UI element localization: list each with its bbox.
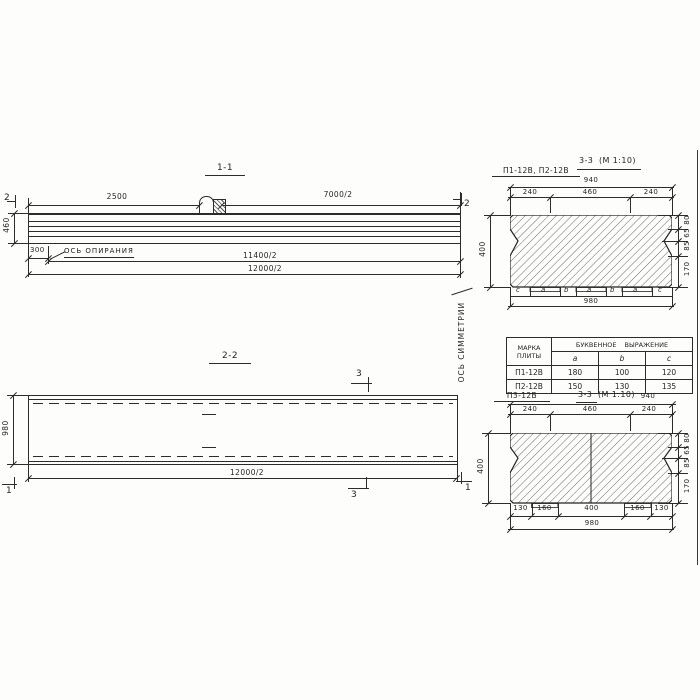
cut-mark-1-left: 1 [6,487,12,497]
beam-strand-line [28,221,460,222]
table-header-marka: МАРКА ПЛИТЫ [507,338,552,366]
center-mark [202,414,216,415]
ext-line [7,464,28,465]
dim-980: 980 [576,520,608,528]
beam-strand-line [28,231,460,232]
table-cell-c: 120 [646,366,693,380]
letter-values-table: МАРКА ПЛИТЫ БУКВЕННОЕ ВЫРАЖЕНИЕ a b c П1… [506,337,693,394]
section-33b-plate-label: П3-12В [494,392,550,402]
dim-line [28,205,199,206]
seg-line [576,287,577,296]
dim-2500: 2500 [95,193,139,201]
title-underline [577,169,641,170]
lifting-loop [199,196,214,214]
cross-section-p3 [510,433,672,509]
dim-460: 460 [3,209,11,241]
slab-edge [28,395,457,396]
ext-line [658,287,688,288]
dim-85: 85 [684,451,692,475]
dim-160: 160 [625,505,650,513]
dim-line [678,215,679,287]
cut-mark-line [7,201,16,202]
axis-support-label: ОСЬ ОПИРАНИЯ [64,248,134,258]
dim-line [28,274,460,275]
dim-line [48,261,460,262]
beam-left-edge [28,213,29,244]
dim-85: 85 [684,234,692,258]
letter-b: b [564,287,569,295]
ext-line [510,404,511,433]
dim-400: 400 [477,450,485,482]
ext-line [672,404,673,433]
loop-anchor-detail [213,199,226,214]
dim-460: 460 [574,189,606,197]
section-2-2-title: 2-2 [209,352,251,364]
letter-b: b [610,287,615,295]
dim-170: 170 [684,257,692,281]
ext-line [630,197,631,213]
dim-line [508,414,674,415]
cut-mark-line [453,199,462,200]
dim-12000-2-plan: 12000/2 [217,469,277,477]
dim-240-left: 240 [514,406,546,414]
dim-7000-2: 7000/2 [308,191,368,199]
dim-line [508,306,674,307]
cut-mark-1-right: 1 [465,484,471,494]
table-col-b: b [599,352,646,366]
ext-line [8,243,28,244]
ext-line [457,465,458,482]
cut-mark-line [14,477,15,489]
slab-edge [28,399,457,400]
seg-line [672,287,673,296]
cut-mark-line [456,481,472,482]
table-cell-marka: П1-12В [507,366,552,380]
dim-line [13,395,14,465]
section-33b-scale: (М 1:10) [598,391,635,400]
dim-940: 940 [636,393,660,401]
letter-a: a [541,287,546,295]
hidden-rib-line [33,456,453,457]
cut-mark-line [461,472,462,484]
section-33b-title: 3-3 [578,391,592,400]
seg-line [510,287,511,296]
cut-mark-2-right: 2 [464,200,470,210]
section-33a-title: 3-3 [579,157,593,166]
letter-a: a [587,287,592,295]
table-header-group: БУКВЕННОЕ ВЫРАЖЕНИЕ [552,338,693,352]
letter-c: c [516,287,520,295]
section-33a-scale: (М 1:10) [599,157,636,166]
seg-line [606,287,607,296]
dim-980: 980 [2,412,10,444]
ext-line [28,198,29,213]
dim-980: 980 [575,298,607,306]
dim-300: 300 [30,247,45,255]
slab-edge [28,395,29,465]
cut-mark-3-bottom: 3 [351,491,357,501]
cross-section-p1-p2 [510,215,672,293]
dim-11400-2: 11400/2 [230,252,290,260]
dim-130: 130 [508,505,533,513]
beam-top-edge [28,213,460,215]
seg-line [560,287,561,296]
table-row: П1-12В 180 100 120 [507,366,693,380]
seg-line [530,287,531,296]
dim-line [508,529,674,530]
axis-symmetry-label: ОСЬ СИММЕТРИИ [458,282,466,402]
dim-240-right: 240 [633,406,665,414]
letter-a: a [633,287,638,295]
dim-line [28,478,457,479]
slab-edge [28,461,457,462]
beam-symmetry-edge [460,192,461,278]
table-col-a: a [552,352,599,366]
letter-c: c [658,287,662,295]
cut-mark-2-left: 2 [4,194,10,204]
section-1-1-title: 1-1 [205,164,245,176]
dim-400: 400 [479,233,487,265]
ext-line [550,414,551,431]
dim-line [28,258,48,259]
ext-line [510,187,511,215]
beam-bottom-edge [28,243,460,245]
frame-edge [697,150,698,565]
center-mark [202,447,216,448]
dim-400: 400 [579,505,604,513]
dim-160: 160 [532,505,557,513]
beam-strand-line [28,236,460,237]
ext-line [550,197,551,213]
dim-line [490,215,491,287]
cut-mark-3-top: 3 [356,370,362,380]
dim-line [488,433,489,503]
ext-line [7,395,28,396]
dim-940: 940 [575,177,607,185]
beam-strand-line [28,226,460,227]
ext-line [630,414,631,431]
table-col-c: c [646,352,693,366]
table-cell-b: 100 [599,366,646,380]
dim-line [508,197,674,198]
dim-12000-2: 12000/2 [235,265,295,273]
dim-460: 460 [574,406,606,414]
dim-line [221,205,460,206]
dim-line [14,213,15,244]
dim-240-right: 240 [635,189,667,197]
title-underline [576,402,597,403]
seg-line [622,287,623,296]
slab-edge [457,395,458,465]
dim-240-left: 240 [514,189,546,197]
cut-mark-line [366,477,367,489]
hidden-rib-line [33,403,453,404]
table-row: МАРКА ПЛИТЫ БУКВЕННОЕ ВЫРАЖЕНИЕ [507,338,693,352]
cut-mark-line [368,377,369,392]
dim-170: 170 [684,474,692,498]
dim-line [678,433,679,503]
ext-line [672,187,673,215]
table-cell-a: 180 [552,366,599,380]
slab-edge [28,464,457,465]
seg-line [652,287,653,296]
section-33a-plates-label: П1-12В, П2-12В [492,167,580,177]
